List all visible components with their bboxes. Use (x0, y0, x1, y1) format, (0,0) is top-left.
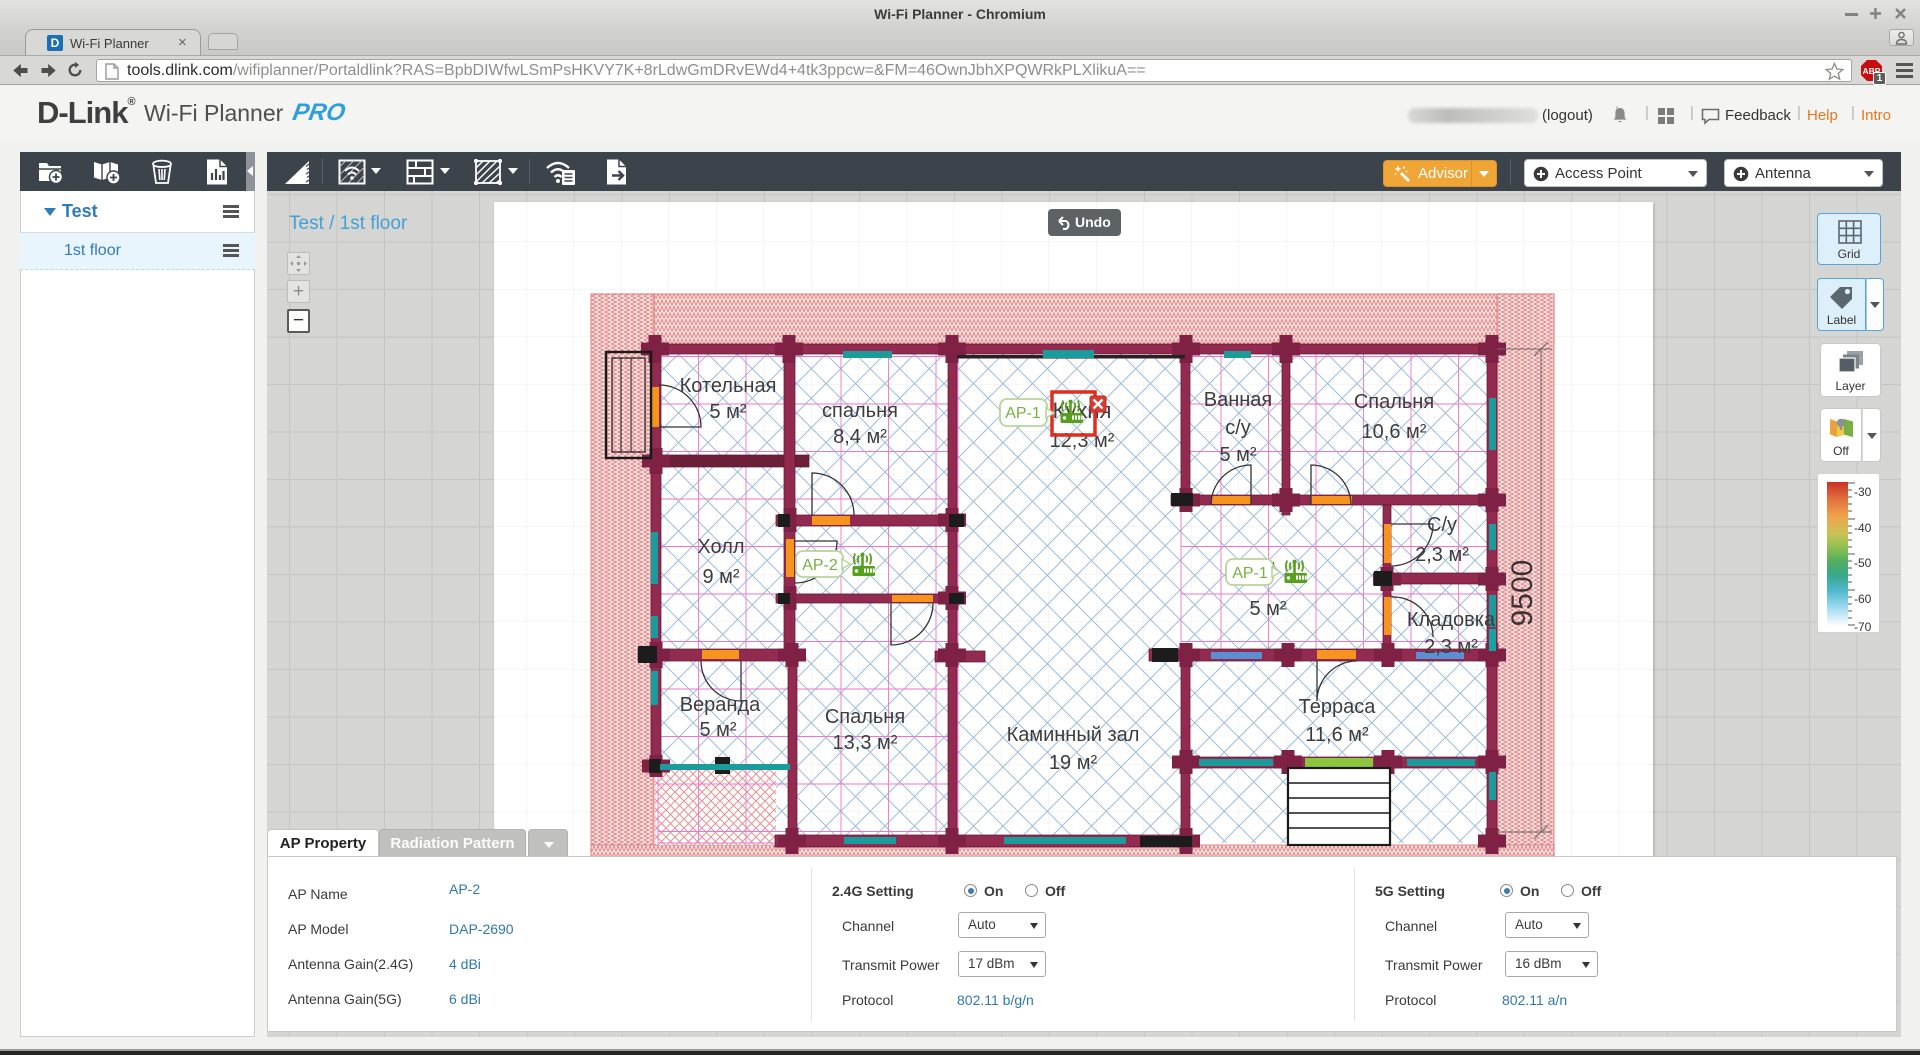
svg-text:AP-1: AP-1 (1005, 405, 1041, 422)
svg-text:с/у: с/у (1225, 417, 1251, 439)
svg-text:Каминный зал: Каминный зал (1007, 724, 1140, 746)
svg-text:5 м²: 5 м² (1219, 444, 1256, 466)
svg-text:Котельная: Котельная (680, 375, 777, 397)
svg-text:Кладовка: Кладовка (1407, 609, 1496, 631)
svg-text:19 м²: 19 м² (1049, 752, 1098, 774)
svg-text:спальня: спальня (822, 400, 898, 422)
svg-text:Веранда: Веранда (680, 694, 761, 716)
svg-text:5 м²: 5 м² (699, 719, 736, 741)
svg-text:С/у: С/у (1427, 514, 1457, 536)
svg-text:2,3 м²: 2,3 м² (1415, 544, 1469, 566)
svg-text:11,6 м²: 11,6 м² (1305, 724, 1369, 746)
svg-text:AP-2: AP-2 (802, 557, 838, 574)
svg-text:Холл: Холл (697, 536, 744, 558)
svg-text:5 м²: 5 м² (1249, 598, 1286, 620)
svg-text:Терраса: Терраса (1299, 696, 1377, 718)
svg-text:5 м²: 5 м² (709, 401, 746, 423)
svg-text:9500: 9500 (1506, 560, 1539, 627)
svg-text:8,4 м²: 8,4 м² (833, 426, 887, 448)
svg-text:13,3 м²: 13,3 м² (833, 732, 898, 754)
svg-text:2,3 м²: 2,3 м² (1424, 636, 1478, 658)
svg-text:Спальня: Спальня (825, 706, 905, 728)
svg-text:9 м²: 9 м² (702, 566, 739, 588)
svg-text:Спальня: Спальня (1354, 391, 1434, 413)
svg-text:AP-1: AP-1 (1232, 565, 1268, 582)
svg-text:10,6 м²: 10,6 м² (1362, 421, 1427, 443)
svg-text:Ванная: Ванная (1204, 389, 1273, 411)
